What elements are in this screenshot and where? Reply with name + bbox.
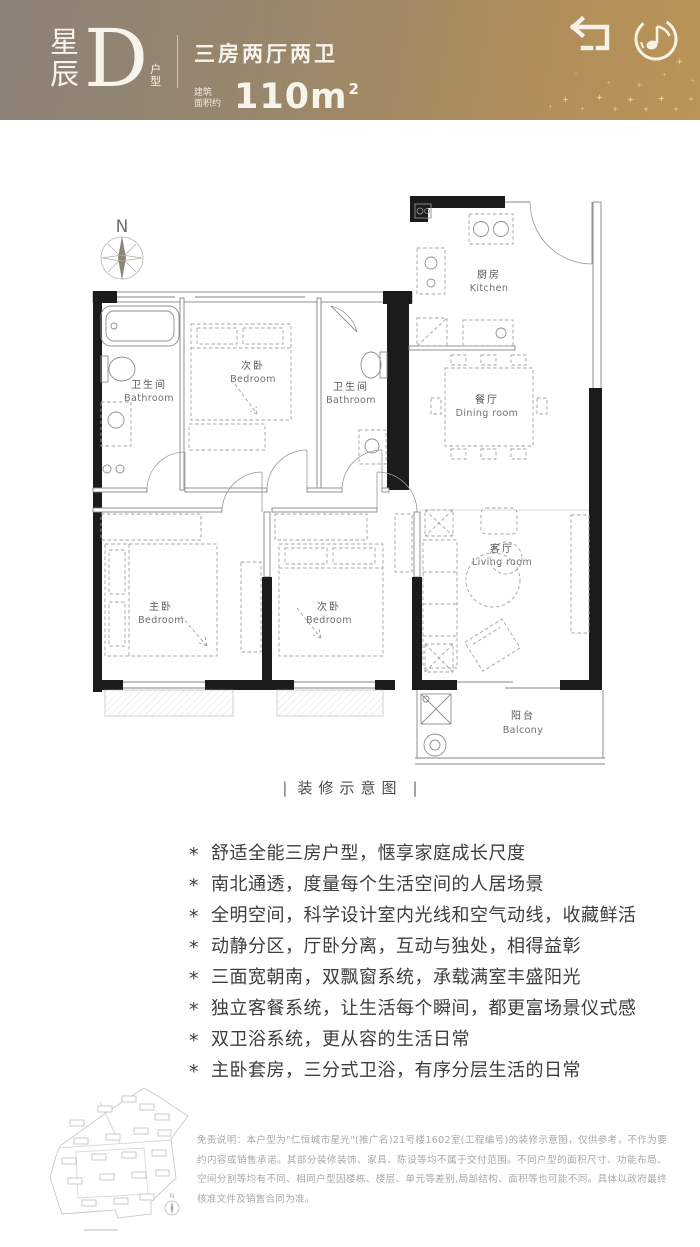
bullet-marker: * — [189, 844, 199, 866]
caption-text: 装修示意图 — [297, 779, 402, 797]
layout-spec: 三房两厅两卫 — [194, 38, 360, 68]
feature-text: 独立客餐系统，让生活每个瞬间，都更富场景仪式感 — [211, 994, 637, 1020]
room-labels: 厨房 Kitchen 餐厅 Dining room 卫生间 Bathroom 次… — [124, 268, 543, 736]
bullet-marker: * — [189, 968, 199, 990]
feature-text: 全明空间，科学设计室内光线和空气动线，收藏鲜活 — [211, 901, 637, 927]
kitchen-label-en: Kitchen — [470, 283, 509, 294]
bedroom2-label-en: Bedroom — [306, 615, 352, 626]
feature-text: 舒适全能三房户型，惬享家庭成长尺度 — [211, 839, 526, 865]
bathroom2-label-zh: 卫生间 — [333, 380, 369, 393]
caption-right-bar: | — [413, 779, 418, 797]
kitchen-label-zh: 厨房 — [477, 268, 501, 281]
compass-n-label: N — [116, 217, 129, 237]
area-row: 建筑 面积约 110m2 — [194, 73, 360, 113]
bullet-marker: * — [189, 1030, 199, 1052]
area-prefix: 建筑 面积约 — [194, 88, 226, 110]
master-bedroom-label-en: Bedroom — [138, 615, 184, 626]
site-compass: N — [165, 1193, 179, 1215]
feature-item: *主卧套房，三分式卫浴，有序分层生活的日常 — [189, 1053, 669, 1084]
feature-item: *全明空间，科学设计室内光线和空气动线，收藏鲜活 — [189, 898, 669, 929]
site-buildings — [62, 1096, 171, 1206]
header-divider — [177, 35, 178, 88]
area-prefix-1: 建筑 — [194, 88, 212, 99]
dining-furniture — [431, 355, 547, 459]
balcony-fixtures — [421, 694, 451, 756]
unit-letter: D — [84, 26, 148, 92]
bedroom2-label-zh: 次卧 — [317, 600, 341, 613]
plan-caption: |装修示意图| — [0, 777, 700, 798]
bullet-marker: * — [189, 875, 199, 897]
doors — [147, 450, 417, 512]
area-prefix-2: 面积约 — [194, 99, 221, 110]
bedroom1-furniture — [189, 324, 291, 450]
living-room-label-en: Living room — [472, 557, 532, 568]
bathroom1-label-zh: 卫生间 — [131, 378, 167, 391]
music-disc-icon[interactable] — [631, 14, 683, 62]
feature-text: 三面宽朝南，双飘窗系统，承载满室丰盛阳光 — [211, 963, 581, 989]
living-room-label-zh: 客厅 — [490, 542, 514, 555]
unit-spec: 三房两厅两卫 建筑 面积约 110m2 — [194, 38, 360, 113]
feature-item: *动静分区，厅卧分离，互动与独处，相得益彰 — [189, 929, 669, 960]
bullet-marker: * — [189, 1061, 199, 1083]
balcony-label-zh: 阳台 — [511, 709, 535, 722]
page: 星辰 D 户型 三房两厅两卫 建筑 面积约 110m2 — [0, 0, 700, 1247]
bullet-marker: * — [189, 937, 199, 959]
site-compass-n: N — [170, 1193, 175, 1200]
feature-text: 双卫浴系统，更从容的生活日常 — [211, 1025, 470, 1051]
bullet-marker: * — [189, 999, 199, 1021]
dining-label-en: Dining room — [456, 408, 519, 419]
feature-text: 南北通透，度量每个生活空间的人居场景 — [211, 870, 544, 896]
bedroom1-label-zh: 次卧 — [241, 359, 265, 372]
feature-item: *独立客餐系统，让生活每个瞬间，都更富场景仪式感 — [189, 991, 669, 1022]
walls — [93, 196, 605, 764]
bedroom1-label-en: Bedroom — [230, 374, 276, 385]
brand-name: 星辰 — [50, 26, 82, 90]
feature-text: 主卧套房，三分式卫浴，有序分层生活的日常 — [211, 1056, 581, 1082]
compass: N — [101, 217, 143, 280]
dining-label-zh: 餐厅 — [475, 393, 499, 406]
feature-item: *三面宽朝南，双飘窗系统，承载满室丰盛阳光 — [189, 960, 669, 991]
bedroom2-furniture — [275, 514, 412, 656]
bullet-marker: * — [189, 906, 199, 928]
floor-plan: N — [85, 188, 620, 783]
unit-suffix: 户型 — [150, 64, 162, 88]
feature-item: *双卫浴系统，更从容的生活日常 — [189, 1022, 669, 1053]
header-banner: 星辰 D 户型 三房两厅两卫 建筑 面积约 110m2 — [0, 0, 700, 120]
living-room-furniture — [423, 508, 589, 672]
site-plan-thumbnail: N — [22, 1082, 198, 1240]
master-bedroom-label-zh: 主卧 — [149, 600, 173, 613]
unit-title: 星辰 D 户型 — [50, 26, 162, 92]
area-value: 110m2 — [234, 73, 360, 113]
bathroom2-label-en: Bathroom — [326, 395, 376, 406]
disclaimer-text: 免责说明：本户型为"仁恒城市星光"(推广名)21号楼1602室(工程编号)的装修… — [197, 1131, 667, 1209]
master-bedroom-furniture — [101, 514, 261, 656]
feature-item: *南北通透，度量每个生活空间的人居场景 — [189, 867, 669, 898]
return-icon[interactable] — [565, 14, 615, 56]
caption-left-bar: | — [282, 779, 287, 797]
area-superscript: 2 — [349, 80, 360, 98]
bathroom1-label-en: Bathroom — [124, 393, 174, 404]
feature-list: *舒适全能三房户型，惬享家庭成长尺度 *南北通透，度量每个生活空间的人居场景 *… — [189, 836, 669, 1084]
feature-item: *舒适全能三房户型，惬享家庭成长尺度 — [189, 836, 669, 867]
feature-text: 动静分区，厅卧分离，互动与独处，相得益彰 — [211, 932, 581, 958]
balcony-label-en: Balcony — [503, 725, 543, 736]
